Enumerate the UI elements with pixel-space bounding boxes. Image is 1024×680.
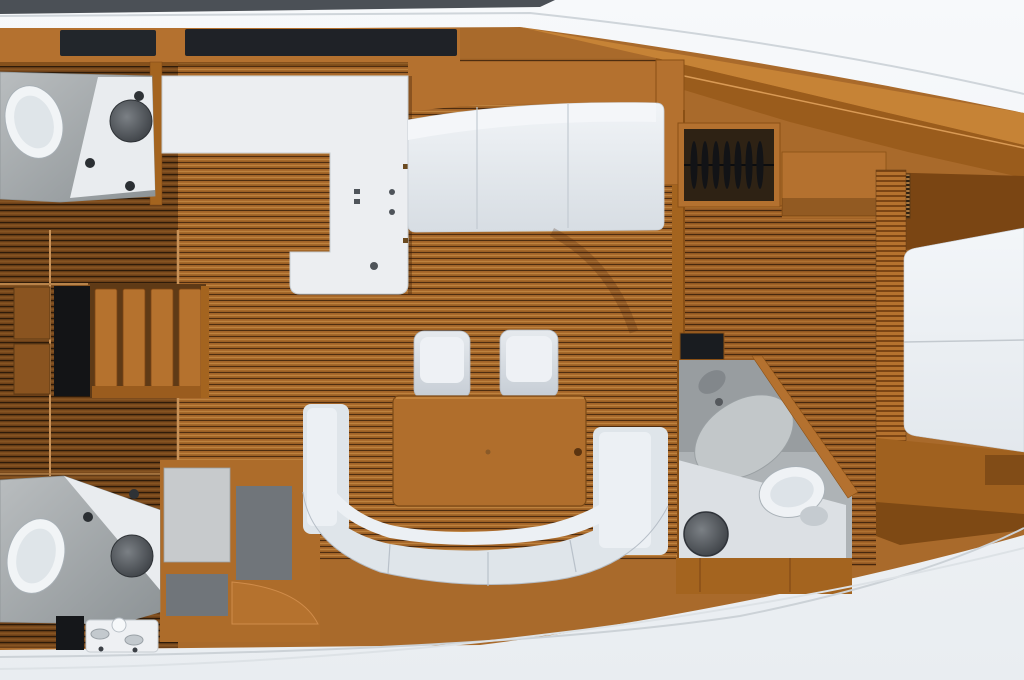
v-berth — [904, 228, 1024, 452]
stove-knob — [112, 618, 126, 632]
aft-head-starboard — [0, 476, 160, 624]
seat-panel-2 — [166, 574, 228, 616]
stool-2 — [500, 330, 558, 398]
washbasin — [111, 535, 153, 577]
stair-recess — [54, 286, 92, 396]
stool-1 — [414, 331, 470, 399]
stair-rail — [201, 286, 209, 398]
seat-panel-1 — [236, 486, 292, 580]
toilet-lid — [800, 506, 828, 526]
stern-fixtures — [56, 616, 158, 653]
arm-left-cushion — [307, 408, 337, 526]
deck-hatch-aft — [60, 30, 156, 56]
dining-table — [393, 396, 586, 506]
faucet — [129, 489, 139, 499]
washbasin — [110, 100, 152, 142]
floor-plan-stage — [0, 0, 1024, 680]
stern-locker — [56, 616, 84, 650]
wardrobe — [678, 123, 780, 207]
aft-cabinet-block — [160, 460, 320, 642]
deck-hatch-galley — [185, 29, 457, 56]
table-latch — [574, 448, 582, 456]
washbasin — [684, 512, 728, 556]
shelf-shade — [782, 198, 886, 216]
bed-foot-notch — [985, 455, 1024, 485]
bottom-step — [92, 386, 204, 398]
below-bed-wood — [876, 438, 1024, 545]
settee-upper — [408, 103, 664, 232]
drain — [83, 512, 93, 522]
head-sill — [676, 556, 852, 594]
desk-panel — [164, 468, 230, 562]
aft-cabin-door-1 — [14, 287, 50, 339]
table-center-mark — [486, 450, 491, 455]
cabinet-shadow — [0, 62, 460, 66]
floor-plan-canvas — [0, 0, 1024, 680]
aft-head-port — [0, 72, 155, 202]
faucet — [134, 91, 144, 101]
faucet — [715, 398, 723, 406]
aft-cabin-door-2 — [14, 344, 50, 394]
